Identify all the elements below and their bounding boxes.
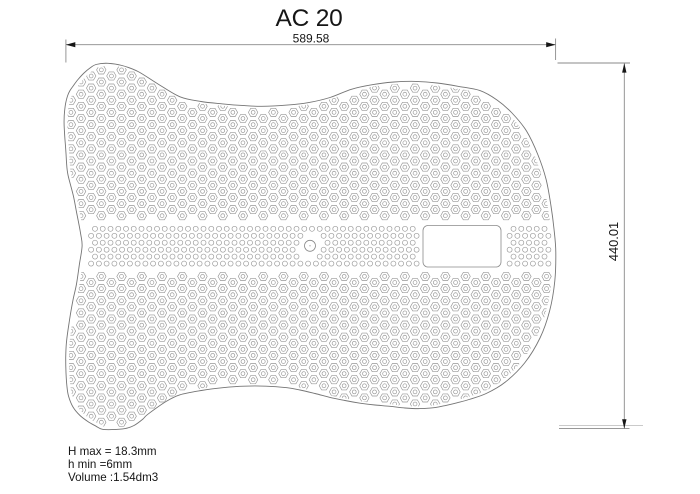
svg-text:589.58: 589.58 — [293, 32, 330, 46]
svg-text:AC 20: AC 20 — [275, 5, 342, 32]
svg-text:Volume :1.54dm3: Volume :1.54dm3 — [68, 471, 158, 484]
svg-text:h min =6mm: h min =6mm — [68, 458, 132, 471]
svg-text:440.01: 440.01 — [606, 222, 621, 261]
svg-text:H max = 18.3mm: H max = 18.3mm — [68, 445, 157, 458]
